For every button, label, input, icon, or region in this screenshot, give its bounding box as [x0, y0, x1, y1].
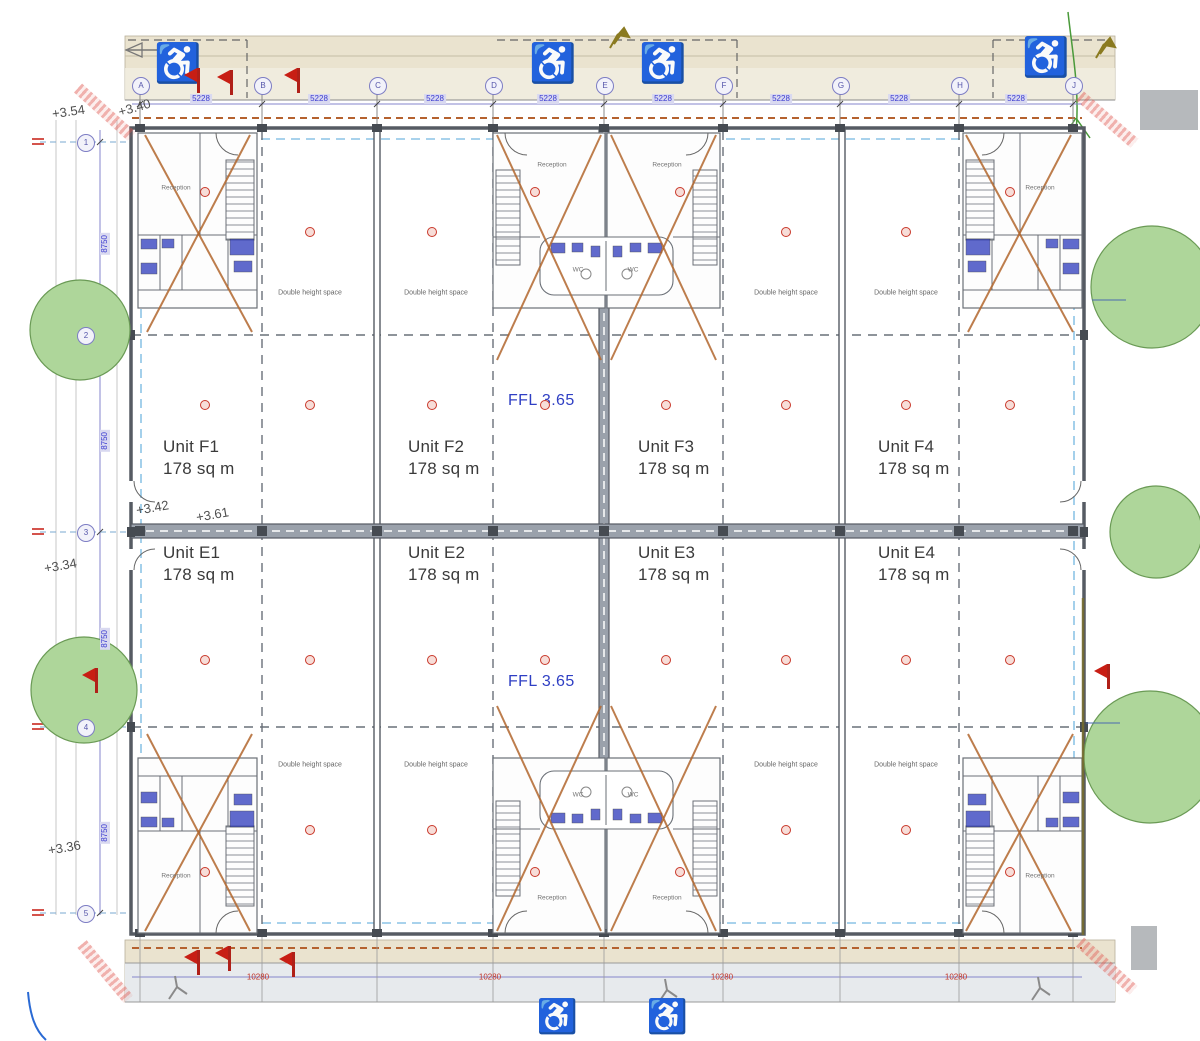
reception-label: Reception [652, 162, 681, 169]
unit-label: Unit E3178 sq m [638, 542, 710, 587]
red-marker [540, 655, 550, 665]
reception-label: Reception [1025, 873, 1054, 880]
red-flag-icon [1094, 664, 1110, 690]
flag-triangle [184, 68, 197, 82]
wc-label: WC [628, 267, 639, 274]
double-height-label: Double height space [278, 290, 342, 297]
bay-dimension: 5228 [1005, 94, 1027, 104]
spot-level: +3.54 [51, 102, 86, 121]
wheelchair-icon: ♿ [639, 45, 686, 83]
unit-area: 178 sq m [163, 458, 235, 480]
red-marker [781, 825, 791, 835]
red-marker [661, 400, 671, 410]
unit-label: Unit E1178 sq m [163, 542, 235, 587]
wc-label: WC [573, 792, 584, 799]
unit-area: 178 sq m [408, 564, 480, 586]
bay-dimension: 5228 [537, 94, 559, 104]
unit-area: 178 sq m [638, 564, 710, 586]
flag-pole [230, 70, 233, 95]
grid-bubble-left: 1 [77, 134, 95, 152]
grid-bubble-top: C [369, 77, 387, 95]
spot-level: +3.40 [117, 96, 153, 119]
wheelchair-icon: ♿ [529, 45, 576, 83]
double-height-label: Double height space [404, 762, 468, 769]
red-marker [901, 825, 911, 835]
flag-triangle [284, 68, 297, 82]
red-marker [781, 400, 791, 410]
red-marker [530, 867, 540, 877]
red-flag-icon [217, 70, 233, 96]
flag-pole [197, 68, 200, 93]
red-marker [305, 655, 315, 665]
red-marker [901, 655, 911, 665]
flag-triangle [82, 668, 95, 682]
unit-label: Unit F2178 sq m [408, 436, 480, 481]
bay-dimension: 5228 [424, 94, 446, 104]
unit-name: Unit E4 [878, 542, 950, 564]
red-marker [1005, 655, 1015, 665]
red-marker [427, 825, 437, 835]
flag-triangle [215, 946, 228, 960]
unit-label: Unit F3178 sq m [638, 436, 710, 481]
unit-area: 178 sq m [163, 564, 235, 586]
grid-bubble-left: 2 [77, 327, 95, 345]
grid-bubble-top: G [832, 77, 850, 95]
grid-bubble-top: B [254, 77, 272, 95]
red-flag-icon [284, 68, 300, 94]
red-marker [427, 400, 437, 410]
red-marker [781, 227, 791, 237]
survey-stamp [1076, 938, 1138, 995]
wheelchair-icon: ♿ [536, 1000, 577, 1033]
spot-level: +3.36 [47, 837, 82, 857]
double-height-label: Double height space [754, 290, 818, 297]
flag-pole [228, 946, 231, 971]
wc-label: WC [573, 267, 584, 274]
reception-label: Reception [161, 873, 190, 880]
red-flag-icon [82, 668, 98, 694]
red-marker [675, 187, 685, 197]
unit-area: 178 sq m [878, 458, 950, 480]
unit-name: Unit F1 [163, 436, 235, 458]
reception-label: Reception [537, 895, 566, 902]
survey-stamp [1076, 91, 1138, 147]
red-marker [1005, 187, 1015, 197]
flag-pole [297, 68, 300, 93]
red-marker [1005, 400, 1015, 410]
bottom-bay-dimension: 10280 [247, 973, 269, 982]
flag-pole [197, 950, 200, 975]
reception-label: Reception [161, 185, 190, 192]
flag-pole [95, 668, 98, 693]
red-flag-icon [279, 952, 295, 978]
grid-bubble-top: A [132, 77, 150, 95]
wheelchair-icon: ♿ [646, 1000, 687, 1033]
flag-triangle [184, 950, 197, 964]
survey-stamp [77, 940, 132, 1003]
bay-dimension: 5228 [190, 94, 212, 104]
red-flag-icon [215, 946, 231, 972]
red-flag-icon [184, 68, 200, 94]
bay-dimension: 5228 [888, 94, 910, 104]
red-marker [427, 655, 437, 665]
unit-name: Unit F2 [408, 436, 480, 458]
side-bay-dimension: 8750 [100, 430, 110, 452]
unit-label: Unit F1178 sq m [163, 436, 235, 481]
bay-dimension: 5228 [308, 94, 330, 104]
unit-name: Unit E1 [163, 542, 235, 564]
grid-bubble-top: H [951, 77, 969, 95]
red-flag-icon [184, 950, 200, 976]
side-bay-dimension: 8750 [100, 822, 110, 844]
double-height-label: Double height space [278, 762, 342, 769]
grid-bubble-top: D [485, 77, 503, 95]
double-height-label: Double height space [874, 290, 938, 297]
red-marker [675, 867, 685, 877]
unit-name: Unit F3 [638, 436, 710, 458]
wc-label: WC [628, 792, 639, 799]
grid-bubble-top: F [715, 77, 733, 95]
bay-dimension: 5228 [770, 94, 792, 104]
bottom-bay-dimension: 10280 [711, 973, 733, 982]
flag-triangle [1094, 664, 1107, 678]
double-height-label: Double height space [754, 762, 818, 769]
spot-level: +3.42 [135, 497, 170, 517]
grid-bubble-left: 5 [77, 905, 95, 923]
grid-bubble-left: 3 [77, 524, 95, 542]
reception-label: Reception [1025, 185, 1054, 192]
red-marker [200, 400, 210, 410]
ffl-label: FFL 3.65 [508, 673, 575, 691]
unit-label: Unit E2178 sq m [408, 542, 480, 587]
reception-label: Reception [537, 162, 566, 169]
unit-area: 178 sq m [638, 458, 710, 480]
red-marker [200, 655, 210, 665]
double-height-label: Double height space [404, 290, 468, 297]
flag-triangle [217, 70, 230, 84]
bottom-bay-dimension: 10280 [479, 973, 501, 982]
flag-pole [1107, 664, 1110, 689]
red-marker [661, 655, 671, 665]
red-marker [305, 825, 315, 835]
wheelchair-icon: ♿ [1022, 39, 1069, 77]
red-marker [1005, 867, 1015, 877]
reception-label: Reception [652, 895, 681, 902]
bottom-bay-dimension: 10280 [945, 973, 967, 982]
red-marker [305, 400, 315, 410]
flag-triangle [279, 952, 292, 966]
flag-pole [292, 952, 295, 977]
unit-area: 178 sq m [878, 564, 950, 586]
red-marker [901, 400, 911, 410]
red-marker [200, 867, 210, 877]
red-marker [540, 400, 550, 410]
unit-name: Unit E3 [638, 542, 710, 564]
red-marker [781, 655, 791, 665]
spot-level: +3.34 [43, 555, 78, 575]
grid-bubble-left: 4 [77, 719, 95, 737]
red-marker [305, 227, 315, 237]
unit-area: 178 sq m [408, 458, 480, 480]
grid-bubble-top: E [596, 77, 614, 95]
unit-label: Unit E4178 sq m [878, 542, 950, 587]
side-bay-dimension: 8750 [100, 233, 110, 255]
spot-level: +3.61 [195, 504, 230, 524]
unit-name: Unit E2 [408, 542, 480, 564]
red-marker [901, 227, 911, 237]
side-bay-dimension: 8750 [100, 628, 110, 650]
bay-dimension: 5228 [652, 94, 674, 104]
annotation-layer: ABCDEFGHJ5228522852285228522852285228522… [0, 0, 1200, 1041]
red-marker [200, 187, 210, 197]
unit-name: Unit F4 [878, 436, 950, 458]
grid-bubble-top: J [1065, 77, 1083, 95]
floor-plan-canvas: ABCDEFGHJ5228522852285228522852285228522… [0, 0, 1200, 1041]
red-marker [530, 187, 540, 197]
red-marker [427, 227, 437, 237]
unit-label: Unit F4178 sq m [878, 436, 950, 481]
double-height-label: Double height space [874, 762, 938, 769]
